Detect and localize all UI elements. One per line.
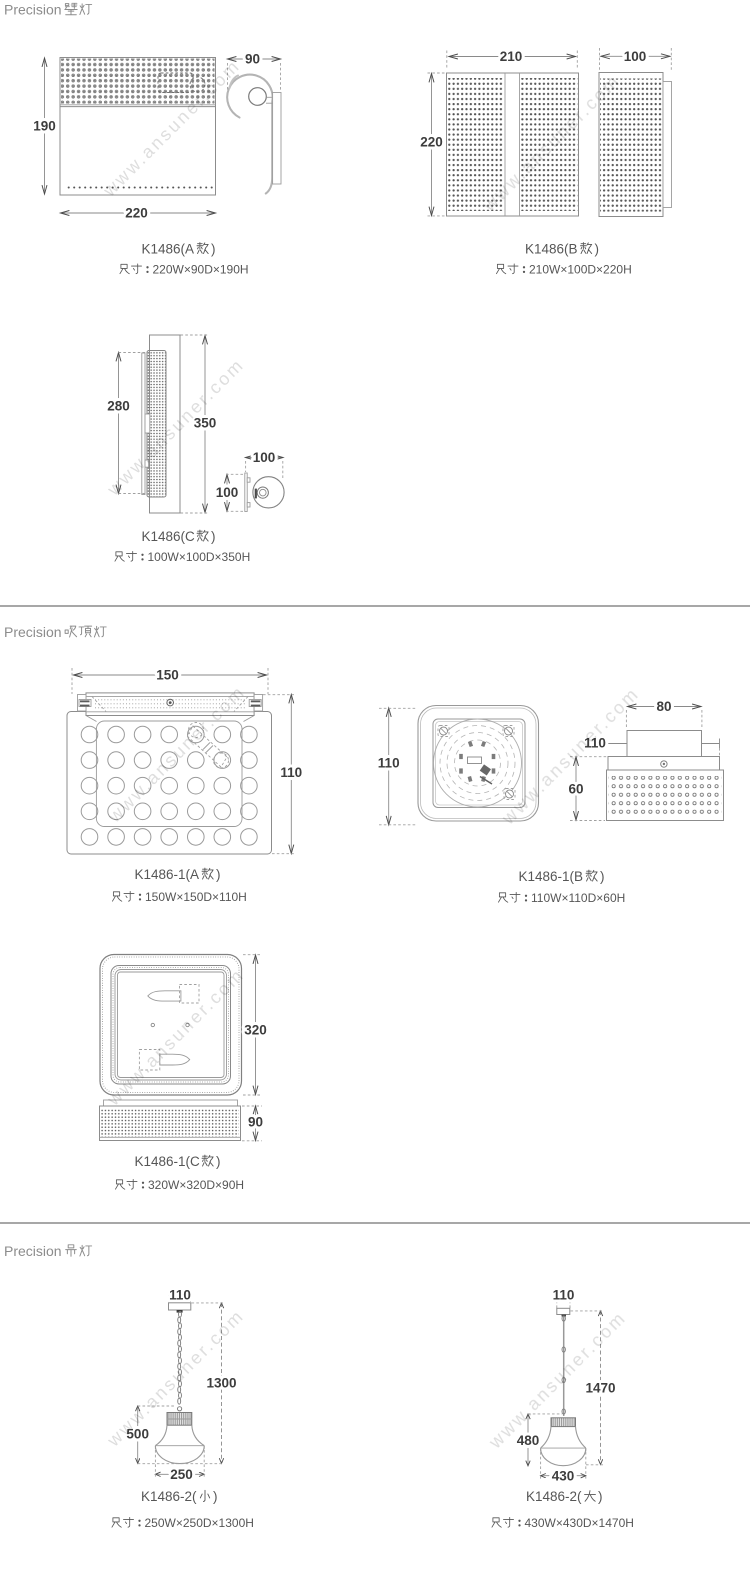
svg-text:90: 90 xyxy=(245,52,260,67)
svg-text:320W×320D×90H: 320W×320D×90H xyxy=(148,1178,244,1192)
svg-text:110W×110D×60H: 110W×110D×60H xyxy=(531,891,625,905)
svg-text:190: 190 xyxy=(33,119,56,134)
svg-text:1470: 1470 xyxy=(585,1381,615,1396)
svg-text:Precision: Precision xyxy=(4,624,62,640)
svg-text:150W×150D×110H: 150W×150D×110H xyxy=(145,890,247,904)
svg-text:): ) xyxy=(595,242,600,257)
svg-text:): ) xyxy=(216,1154,221,1169)
svg-text:): ) xyxy=(598,1489,603,1504)
svg-text:100: 100 xyxy=(624,49,647,64)
svg-text:480: 480 xyxy=(517,1433,540,1448)
svg-text:100: 100 xyxy=(253,450,276,465)
svg-text:K1486-2(: K1486-2( xyxy=(526,1489,582,1504)
svg-text:80: 80 xyxy=(656,699,671,714)
svg-text:): ) xyxy=(211,529,216,544)
svg-text:320: 320 xyxy=(244,1023,267,1038)
svg-text:): ) xyxy=(600,869,605,884)
svg-text:220: 220 xyxy=(125,206,148,221)
svg-text:K1486(A: K1486(A xyxy=(142,242,195,257)
svg-text:90: 90 xyxy=(248,1115,263,1130)
svg-text:1300: 1300 xyxy=(206,1376,236,1391)
svg-text:K1486(B: K1486(B xyxy=(525,242,578,257)
svg-text:60: 60 xyxy=(568,782,583,797)
svg-text:100W×100D×350H: 100W×100D×350H xyxy=(148,550,251,564)
svg-text:Precision: Precision xyxy=(4,1243,62,1259)
svg-text:430W×430D×1470H: 430W×430D×1470H xyxy=(525,1516,634,1530)
svg-text:Precision: Precision xyxy=(4,2,62,18)
svg-text:110: 110 xyxy=(280,765,302,780)
svg-text:110: 110 xyxy=(169,1288,191,1303)
svg-text:): ) xyxy=(211,242,216,257)
svg-text:110: 110 xyxy=(378,756,400,771)
svg-text:100: 100 xyxy=(216,485,239,500)
svg-text:280: 280 xyxy=(107,399,130,414)
svg-text:): ) xyxy=(216,867,221,882)
svg-text:K1486-1(B: K1486-1(B xyxy=(519,869,584,884)
svg-text:250: 250 xyxy=(170,1467,193,1482)
svg-text:430: 430 xyxy=(552,1468,575,1483)
svg-text:K1486-1(C: K1486-1(C xyxy=(135,1154,201,1169)
svg-text:210: 210 xyxy=(500,49,523,64)
svg-text:220: 220 xyxy=(420,135,443,150)
svg-text:210W×100D×220H: 210W×100D×220H xyxy=(529,263,632,277)
svg-text:): ) xyxy=(213,1489,218,1504)
svg-text:220W×90D×190H: 220W×90D×190H xyxy=(153,263,249,277)
svg-text:150: 150 xyxy=(156,668,179,683)
svg-text:K1486(C: K1486(C xyxy=(142,529,196,544)
svg-text:110: 110 xyxy=(553,1288,575,1303)
svg-text:K1486-1(A: K1486-1(A xyxy=(135,867,200,882)
svg-text:K1486-2(: K1486-2( xyxy=(141,1489,197,1504)
svg-text:250W×250D×1300H: 250W×250D×1300H xyxy=(145,1516,254,1530)
